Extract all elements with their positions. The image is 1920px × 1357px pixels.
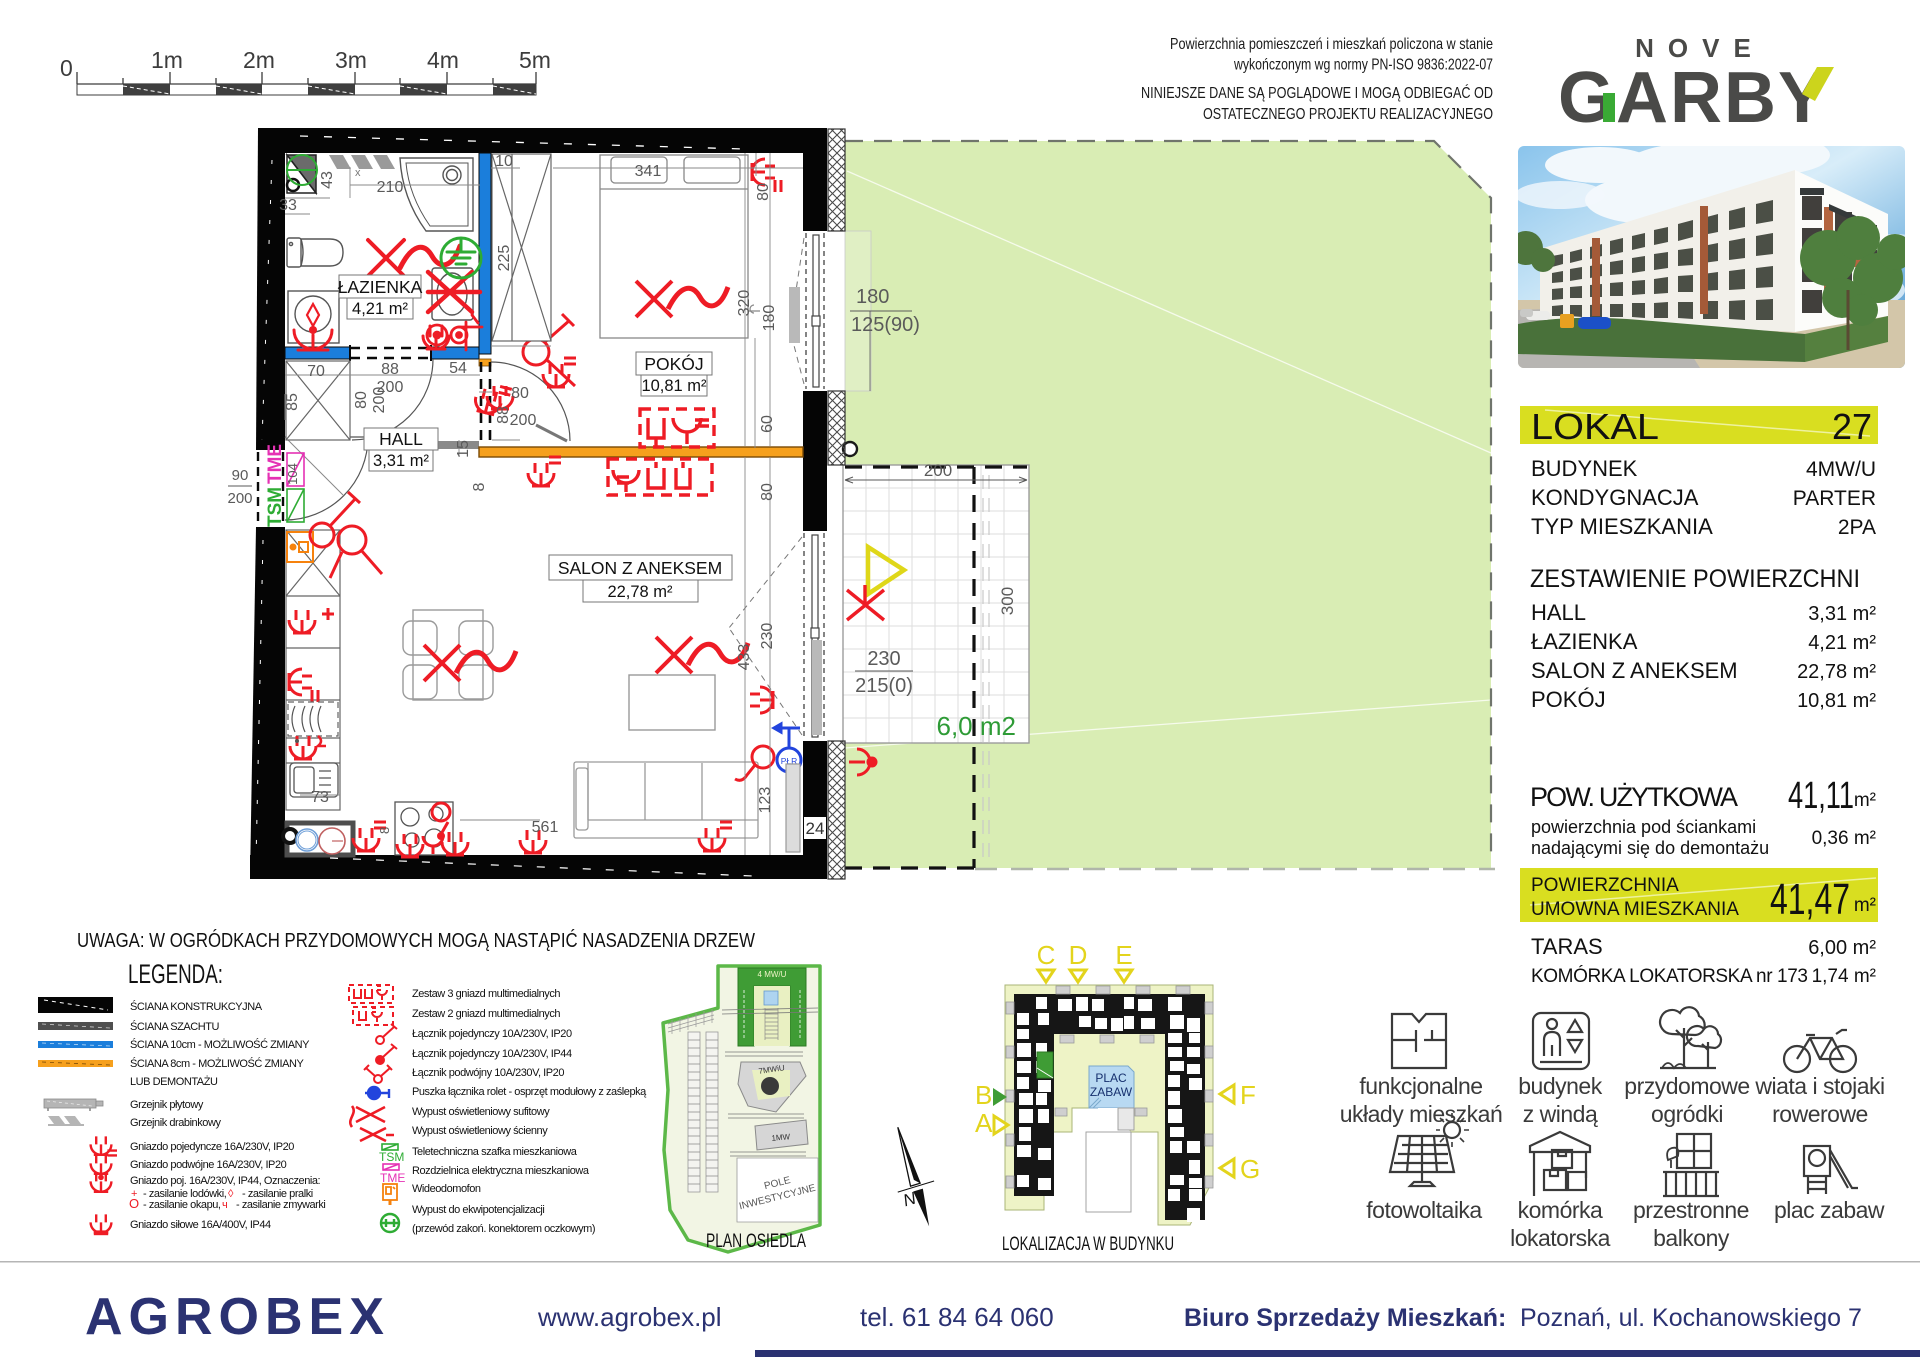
svg-text:ŚCIANA KONSTRUKCYJNA: ŚCIANA KONSTRUKCYJNA <box>130 1000 263 1013</box>
svg-text:Biuro Sprzedaży Mieszkań:: Biuro Sprzedaży Mieszkań: <box>1184 1304 1506 1332</box>
svg-text:przydomowe: przydomowe <box>1624 1073 1749 1099</box>
svg-text:PARTER: PARTER <box>1793 487 1876 510</box>
svg-text:4MW/U: 4MW/U <box>1806 458 1876 481</box>
svg-text:3,31 m²: 3,31 m² <box>1808 603 1876 625</box>
svg-text:1,74 m²: 1,74 m² <box>1812 966 1876 987</box>
svg-text:A: A <box>975 1108 993 1138</box>
svg-text:TME: TME <box>265 444 286 484</box>
svg-text:Gniazdo podwójne 16A/230V, IP2: Gniazdo podwójne 16A/230V, IP20 <box>130 1159 287 1171</box>
svg-text:Łącznik podwójny 10A/230V, IP2: Łącznik podwójny 10A/230V, IP20 <box>412 1067 564 1079</box>
svg-text:www.agrobex.pl: www.agrobex.pl <box>537 1302 722 1332</box>
svg-text:8: 8 <box>377 827 392 834</box>
svg-text:24: 24 <box>806 819 825 838</box>
svg-text:funkcjonalne: funkcjonalne <box>1359 1073 1482 1099</box>
svg-text:80: 80 <box>353 391 370 409</box>
svg-text:Zestaw 2 gniazd multimedialnyc: Zestaw 2 gniazd multimedialnych <box>412 1008 560 1020</box>
svg-text:B: B <box>975 1080 992 1110</box>
svg-text:TARAS: TARAS <box>1531 934 1603 959</box>
svg-text:230: 230 <box>759 623 776 650</box>
svg-text:ŚCIANA SZACHTU: ŚCIANA SZACHTU <box>130 1020 220 1033</box>
svg-text:rowerowe: rowerowe <box>1772 1101 1868 1127</box>
svg-text:4 MW/U: 4 MW/U <box>758 970 787 979</box>
svg-text:ZABAW: ZABAW <box>1090 1085 1133 1099</box>
svg-text:320: 320 <box>736 290 753 317</box>
svg-text:C: C <box>1037 940 1056 970</box>
svg-text:TYP MIESZKANIA: TYP MIESZKANIA <box>1531 514 1713 539</box>
svg-text:F: F <box>1240 1080 1256 1110</box>
svg-text:200: 200 <box>371 387 388 414</box>
svg-text:GARBY: GARBY <box>1558 58 1828 138</box>
svg-text:POKÓJ: POKÓJ <box>644 353 703 374</box>
svg-text:układy mieszkań: układy mieszkań <box>1340 1101 1503 1127</box>
svg-text:3m: 3m <box>335 47 367 73</box>
svg-text:230: 230 <box>867 648 900 670</box>
svg-text:NINIEJSZE DANE SĄ POGLĄDOWE I: NINIEJSZE DANE SĄ POGLĄDOWE I MOGĄ ODBIE… <box>1141 83 1493 102</box>
svg-text:KONDYGNACJA: KONDYGNACJA <box>1531 485 1699 510</box>
svg-text:0: 0 <box>60 55 73 81</box>
svg-text:200: 200 <box>924 461 952 480</box>
svg-text:HALL: HALL <box>1531 600 1586 625</box>
svg-text:BUDYNEK: BUDYNEK <box>1531 456 1638 481</box>
svg-text:210: 210 <box>377 179 404 196</box>
svg-text:PLAN OSIEDLA: PLAN OSIEDLA <box>706 1231 806 1252</box>
svg-text:1MW: 1MW <box>771 1132 791 1143</box>
svg-text:E: E <box>1115 940 1132 970</box>
svg-text:Poznań, ul. Kochanowskiego 7: Poznań, ul. Kochanowskiego 7 <box>1520 1304 1862 1332</box>
svg-text:4m: 4m <box>427 47 459 73</box>
svg-text:SALON Z ANEKSEM: SALON Z ANEKSEM <box>1531 658 1738 683</box>
svg-text:D: D <box>1069 940 1088 970</box>
svg-text:41,11: 41,11 <box>1788 775 1854 817</box>
svg-text:Rozdzielnica elektryczna miesz: Rozdzielnica elektryczna mieszkaniowa <box>412 1165 590 1177</box>
svg-text:TSM: TSM <box>379 1150 404 1164</box>
svg-text:43: 43 <box>319 171 336 189</box>
svg-text:m²: m² <box>1854 895 1876 916</box>
svg-text:10: 10 <box>495 153 513 170</box>
svg-text:POKÓJ: POKÓJ <box>1531 687 1606 712</box>
svg-text:80: 80 <box>511 385 529 402</box>
svg-text:z windą: z windą <box>1523 1101 1598 1127</box>
svg-text:Powierzchnia pomieszczeń i mie: Powierzchnia pomieszczeń i mieszkań poli… <box>1170 36 1493 53</box>
svg-text:Gniazdo siłowe 16A/400V, IP44: Gniazdo siłowe 16A/400V, IP44 <box>130 1219 271 1231</box>
svg-text:OSTATECZNEGO PROJEKTU REALIZAC: OSTATECZNEGO PROJEKTU REALIZACYJNEGO <box>1203 106 1493 123</box>
svg-text:Grzejnik płytowy: Grzejnik płytowy <box>130 1099 204 1111</box>
svg-text:Łącznik pojedynczy 10A/230V, I: Łącznik pojedynczy 10A/230V, IP20 <box>412 1028 572 1040</box>
svg-text:G: G <box>1240 1154 1260 1184</box>
svg-text:10,81 m²: 10,81 m² <box>1797 690 1876 712</box>
svg-text:125(90): 125(90) <box>851 314 920 336</box>
svg-text:budynek: budynek <box>1518 1073 1602 1099</box>
svg-text:Zestaw 3 gniazd multimedialnyc: Zestaw 3 gniazd multimedialnych <box>412 988 560 1000</box>
svg-text:Gniazdo pojedyncze 16A/230V, I: Gniazdo pojedyncze 16A/230V, IP20 <box>130 1141 294 1153</box>
svg-text:ogródki: ogródki <box>1651 1101 1723 1127</box>
svg-text:ŁAZIENKA: ŁAZIENKA <box>1531 629 1638 654</box>
svg-text:300: 300 <box>998 587 1017 615</box>
svg-text:(przewód zakoń. konektorem ocz: (przewód zakoń. konektorem oczkowym) <box>412 1223 595 1235</box>
svg-text:70: 70 <box>307 363 325 380</box>
svg-text:15: 15 <box>455 440 472 458</box>
svg-text:AGROBEX: AGROBEX <box>85 1288 390 1346</box>
svg-text:- zasilanie okapu,: - zasilanie okapu, <box>143 1199 221 1211</box>
svg-text:73: 73 <box>311 789 329 806</box>
svg-text:54: 54 <box>449 360 467 377</box>
svg-text:Wypust oświetleniowy sufitowy: Wypust oświetleniowy sufitowy <box>412 1106 550 1118</box>
svg-text:Grzejnik drabinkowy: Grzejnik drabinkowy <box>130 1117 221 1129</box>
svg-text:O: O <box>129 1196 139 1211</box>
svg-text:lokatorska: lokatorska <box>1510 1225 1611 1251</box>
svg-text:wiata i stojaki: wiata i stojaki <box>1754 1073 1884 1099</box>
svg-text:80: 80 <box>759 483 776 501</box>
svg-text:Teletechniczna szafka mieszkan: Teletechniczna szafka mieszkaniowa <box>412 1146 578 1158</box>
svg-text:- zasilanie zmywarki: - zasilanie zmywarki <box>236 1199 325 1211</box>
svg-text:341: 341 <box>635 163 662 180</box>
svg-text:powierzchnia pod ściankami: powierzchnia pod ściankami <box>1531 817 1756 837</box>
svg-text:nadającymi się do demontażu: nadającymi się do demontażu <box>1531 838 1769 858</box>
svg-text:215(0): 215(0) <box>855 675 913 697</box>
svg-text:plac zabaw: plac zabaw <box>1774 1197 1885 1223</box>
svg-text:ZESTAWIENIE POWIERZCHNI: ZESTAWIENIE POWIERZCHNI <box>1530 565 1860 593</box>
svg-text:◊: ◊ <box>228 1188 234 1200</box>
svg-text:41,47: 41,47 <box>1770 875 1850 924</box>
svg-text:fotowoltaika: fotowoltaika <box>1366 1197 1482 1223</box>
svg-text:33: 33 <box>279 197 297 214</box>
svg-text:KOMÓRKA LOKATORSKA nr 173: KOMÓRKA LOKATORSKA nr 173 <box>1531 965 1808 987</box>
svg-text:10,81 m²: 10,81 m² <box>641 377 707 395</box>
svg-text:POWIERZCHNIA: POWIERZCHNIA <box>1531 875 1679 896</box>
svg-text:4,21 m²: 4,21 m² <box>352 300 408 318</box>
svg-text:SALON Z ANEKSEM: SALON Z ANEKSEM <box>558 558 722 578</box>
svg-text:22,78 m²: 22,78 m² <box>607 583 673 601</box>
svg-text:90: 90 <box>232 467 249 484</box>
svg-text:88: 88 <box>381 361 399 378</box>
svg-text:123: 123 <box>757 787 774 814</box>
svg-text:ŁAZIENKA: ŁAZIENKA <box>338 277 423 297</box>
svg-text:2m: 2m <box>243 47 275 73</box>
svg-text:200: 200 <box>510 412 537 429</box>
svg-text:180: 180 <box>856 286 889 308</box>
svg-text:ч: ч <box>222 1199 227 1211</box>
svg-text:HALL: HALL <box>379 429 423 449</box>
svg-text:m²: m² <box>1854 790 1876 811</box>
svg-text:0,36 m²: 0,36 m² <box>1812 828 1876 849</box>
svg-text:PLAC: PLAC <box>1095 1071 1127 1085</box>
svg-text:TSM: TSM <box>265 487 286 527</box>
svg-text:433: 433 <box>736 644 753 671</box>
svg-text:LOKALIZACJA W BUDYNKU: LOKALIZACJA W BUDYNKU <box>1002 1234 1174 1255</box>
svg-text:przestronne: przestronne <box>1633 1197 1749 1223</box>
svg-text:LUB DEMONTAŻU: LUB DEMONTAŻU <box>130 1075 218 1088</box>
svg-text:wykończonym wg normy PN-ISO 98: wykończonym wg normy PN-ISO 9836:2022-07 <box>1233 57 1493 74</box>
svg-text:Wideodomofon: Wideodomofon <box>412 1183 481 1195</box>
svg-text:ŚCIANA 10cm - MOŻLIWOŚĆ ZMIANY: ŚCIANA 10cm - MOŻLIWOŚĆ ZMIANY <box>130 1038 310 1051</box>
svg-text:104: 104 <box>285 463 300 485</box>
svg-text:komórka: komórka <box>1518 1197 1603 1223</box>
svg-text:27: 27 <box>1832 406 1872 447</box>
svg-text:8: 8 <box>471 482 488 491</box>
svg-text:85: 85 <box>284 393 301 411</box>
svg-text:UWAGA: W OGRÓDKACH PRZYDOMOWYC: UWAGA: W OGRÓDKACH PRZYDOMOWYCH MOGĄ NAS… <box>77 929 756 952</box>
svg-text:balkony: balkony <box>1653 1225 1730 1251</box>
svg-text:Łącznik pojedynczy 10A/230V, I: Łącznik pojedynczy 10A/230V, IP44 <box>412 1048 572 1060</box>
svg-text:3,31 m²: 3,31 m² <box>373 452 429 470</box>
svg-text:TME: TME <box>380 1171 405 1185</box>
svg-text:22,78 m²: 22,78 m² <box>1797 661 1876 683</box>
svg-text:4,21 m²: 4,21 m² <box>1808 632 1876 654</box>
svg-text:180: 180 <box>761 305 778 332</box>
svg-text:6,0 m2: 6,0 m2 <box>937 711 1017 741</box>
svg-text:UMOWNA MIESZKANIA: UMOWNA MIESZKANIA <box>1531 899 1739 920</box>
svg-text:LEGENDA:: LEGENDA: <box>128 959 223 989</box>
svg-text:2PA: 2PA <box>1838 516 1876 539</box>
svg-text:x: x <box>355 167 361 179</box>
svg-text:Gniazdo poj. 16A/230V, IP44, O: Gniazdo poj. 16A/230V, IP44, Oznaczenia: <box>130 1175 321 1187</box>
svg-text:tel. 61 84 64 060: tel. 61 84 64 060 <box>860 1302 1054 1332</box>
svg-text:60: 60 <box>759 415 776 433</box>
svg-text:POW. UŻYTKOWA: POW. UŻYTKOWA <box>1530 781 1738 812</box>
svg-text:LOKAL: LOKAL <box>1531 406 1659 447</box>
svg-text:225: 225 <box>496 245 513 272</box>
svg-text:200: 200 <box>227 490 252 507</box>
svg-text:561: 561 <box>532 819 559 836</box>
svg-text:80: 80 <box>755 183 772 201</box>
svg-text:ŚCIANA 8cm - MOŻLIWOŚĆ ZMIANY: ŚCIANA 8cm - MOŻLIWOŚĆ ZMIANY <box>130 1057 304 1070</box>
svg-text:1m: 1m <box>151 47 183 73</box>
svg-text:Puszka łącznika rolet - osprzę: Puszka łącznika rolet - osprzęt modułowy… <box>412 1086 647 1098</box>
svg-text:5m: 5m <box>519 47 551 73</box>
svg-text:Wypust do ekwipotencjalizacji: Wypust do ekwipotencjalizacji <box>412 1204 544 1216</box>
svg-text:Wypust oświetleniowy ścienny: Wypust oświetleniowy ścienny <box>412 1125 548 1137</box>
svg-text:6,00 m²: 6,00 m² <box>1808 937 1876 959</box>
